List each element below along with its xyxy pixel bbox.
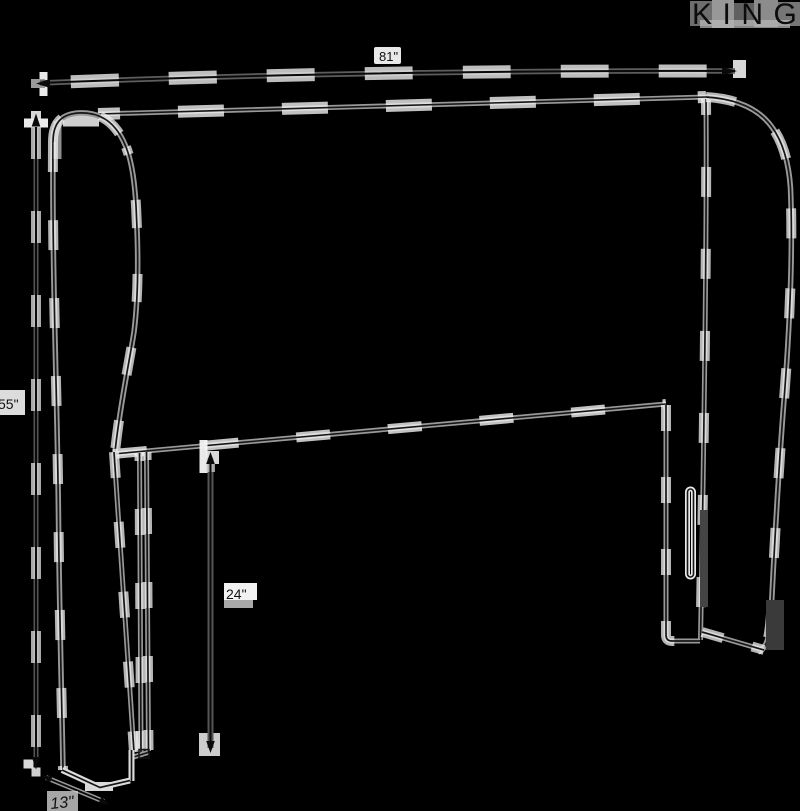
svg-text:81": 81"	[379, 49, 398, 64]
svg-text:KING: KING	[692, 0, 800, 31]
svg-text:13": 13"	[50, 793, 76, 811]
svg-text:24": 24"	[226, 586, 247, 602]
svg-text:55": 55"	[0, 396, 19, 412]
